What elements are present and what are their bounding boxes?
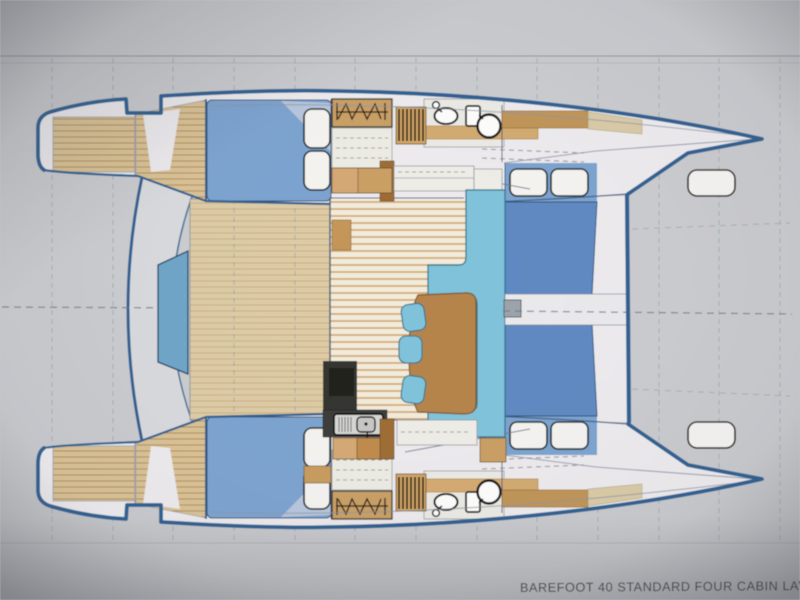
catamaran-floor-plan: BAREFOOT 40 STANDARD FOUR CABIN LAYOUT	[0, 0, 800, 600]
photo-shade-bottom	[0, 0, 800, 600]
barefoot-40-floor-plan-photo: BAREFOOT 40 STANDARD FOUR CABIN LAYOUT	[0, 0, 800, 600]
